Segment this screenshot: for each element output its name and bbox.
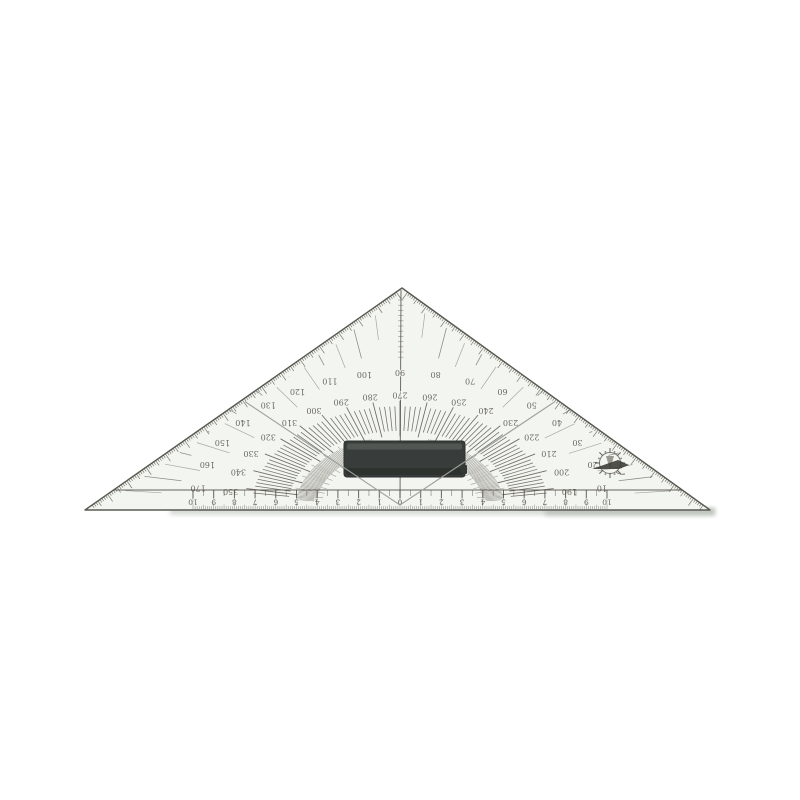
grip-handle xyxy=(344,441,467,477)
degree-ring-label: 250 xyxy=(451,398,466,407)
degree-ring-label: 90 xyxy=(395,368,405,377)
degree-ring-label: 160 xyxy=(200,460,215,469)
degree-ring-label: 100 xyxy=(357,370,372,379)
degree-ring-label: 50 xyxy=(527,401,537,410)
product-photo: 1020304050607080901001101201301401501601… xyxy=(0,0,800,800)
degree-ring-label: 230 xyxy=(503,418,518,427)
degree-ring-label: 70 xyxy=(465,377,475,386)
degree-ring-label: 150 xyxy=(215,438,230,447)
degree-ring-label: 300 xyxy=(306,406,321,415)
degree-ring-label: 320 xyxy=(261,432,276,441)
degree-ring-label: 140 xyxy=(235,418,250,427)
degree-ring-label: 330 xyxy=(243,449,258,458)
triangle-protractor: 1020304050607080901001101201301401501601… xyxy=(0,0,800,800)
degree-ring-label: 210 xyxy=(541,449,556,458)
degree-ring-label: 40 xyxy=(552,418,562,427)
degree-ring-label: 280 xyxy=(362,392,377,401)
degree-ring-label: 340 xyxy=(231,467,246,476)
degree-ring-label: 20 xyxy=(588,460,598,469)
degree-ring-label: 10 xyxy=(597,483,607,492)
degree-ring-label: 130 xyxy=(261,401,276,410)
degree-ring-label: 290 xyxy=(334,398,349,407)
degree-ring-label: 310 xyxy=(282,418,297,427)
degree-ring-label: 120 xyxy=(290,387,305,396)
degree-ring-label: 260 xyxy=(422,392,437,401)
degree-ring-label: 240 xyxy=(478,406,493,415)
degree-ring-label: 190 xyxy=(562,487,577,496)
degree-ring-label: 30 xyxy=(572,438,582,447)
degree-ring-label: 110 xyxy=(322,377,337,386)
degree-ring-label: 200 xyxy=(554,467,569,476)
degree-ring-label: 60 xyxy=(497,387,507,396)
degree-ring-label: 220 xyxy=(524,432,539,441)
degree-ring-label: 80 xyxy=(431,370,441,379)
degree-ring-label: 270 xyxy=(392,391,407,400)
degree-ring-label: 350 xyxy=(223,487,238,496)
